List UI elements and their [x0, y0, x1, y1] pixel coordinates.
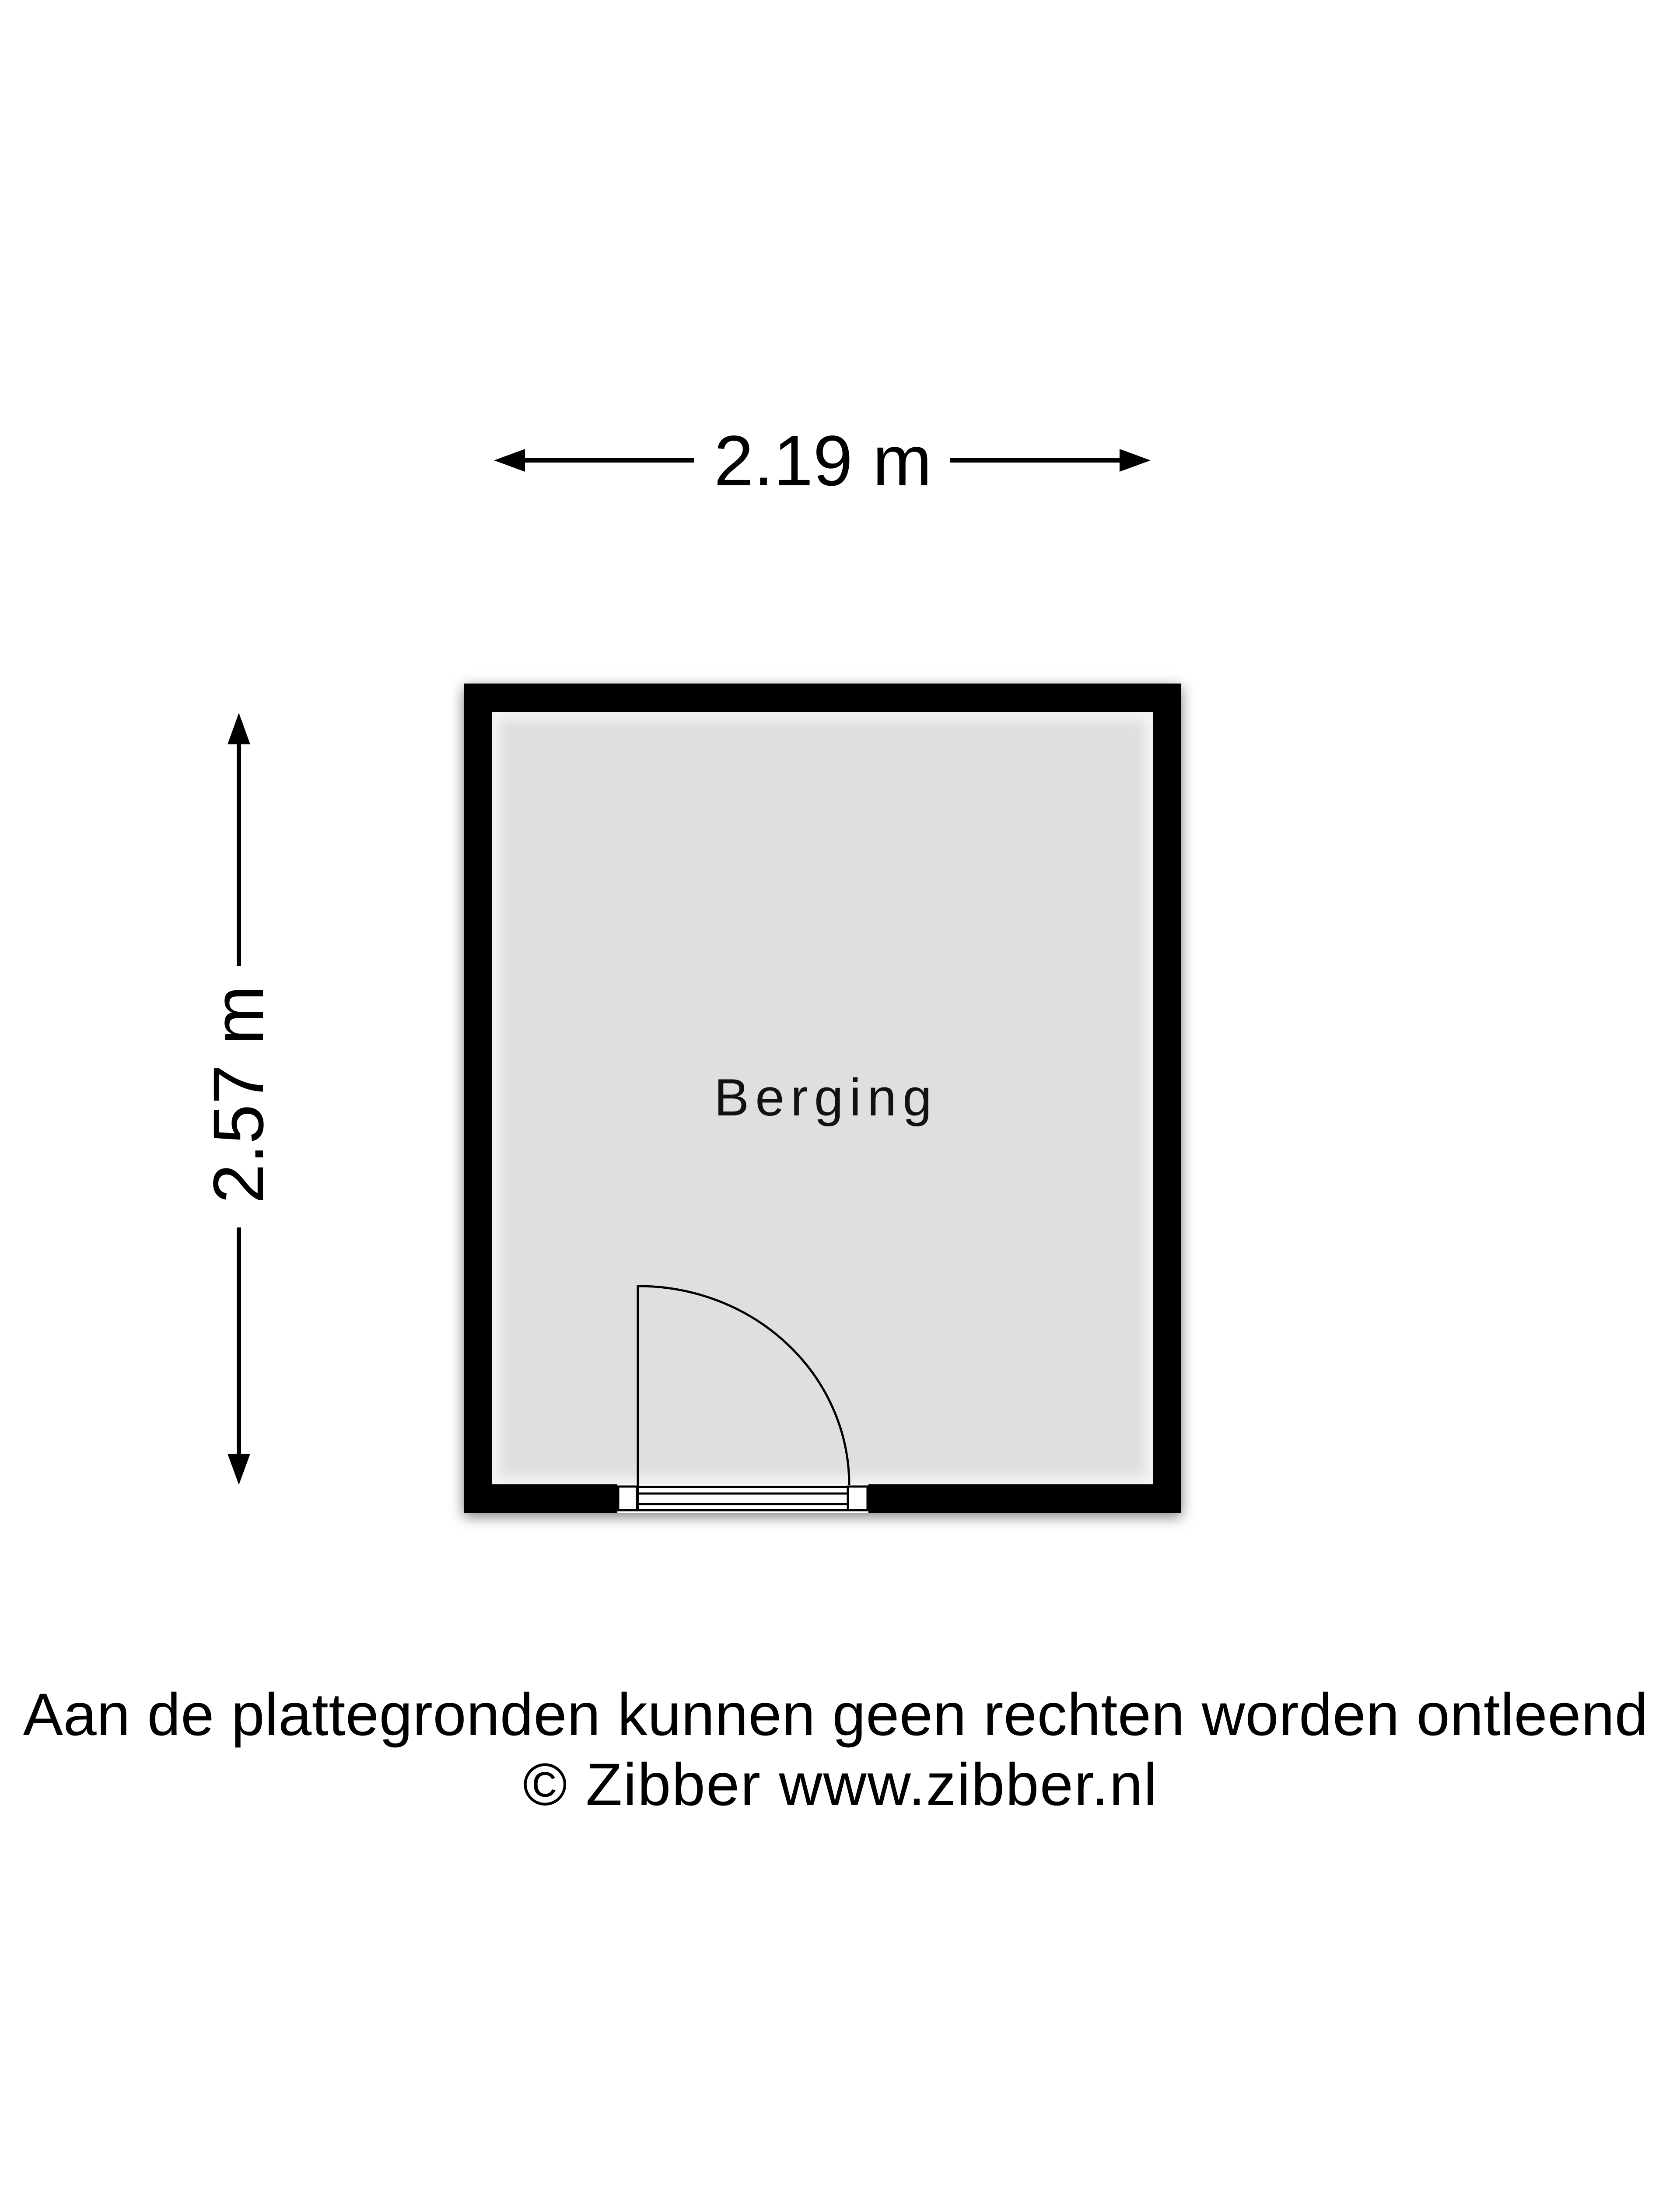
svg-text:2.57 m: 2.57 m	[198, 985, 278, 1203]
svg-text:Aan de plattegronden kunnen ge: Aan de plattegronden kunnen geen rechten…	[23, 1681, 1648, 1748]
svg-text:© Zibber www.zibber.nl: © Zibber www.zibber.nl	[523, 1751, 1158, 1818]
svg-text:2.19 m: 2.19 m	[714, 421, 932, 501]
svg-text:Berging: Berging	[714, 1068, 938, 1127]
